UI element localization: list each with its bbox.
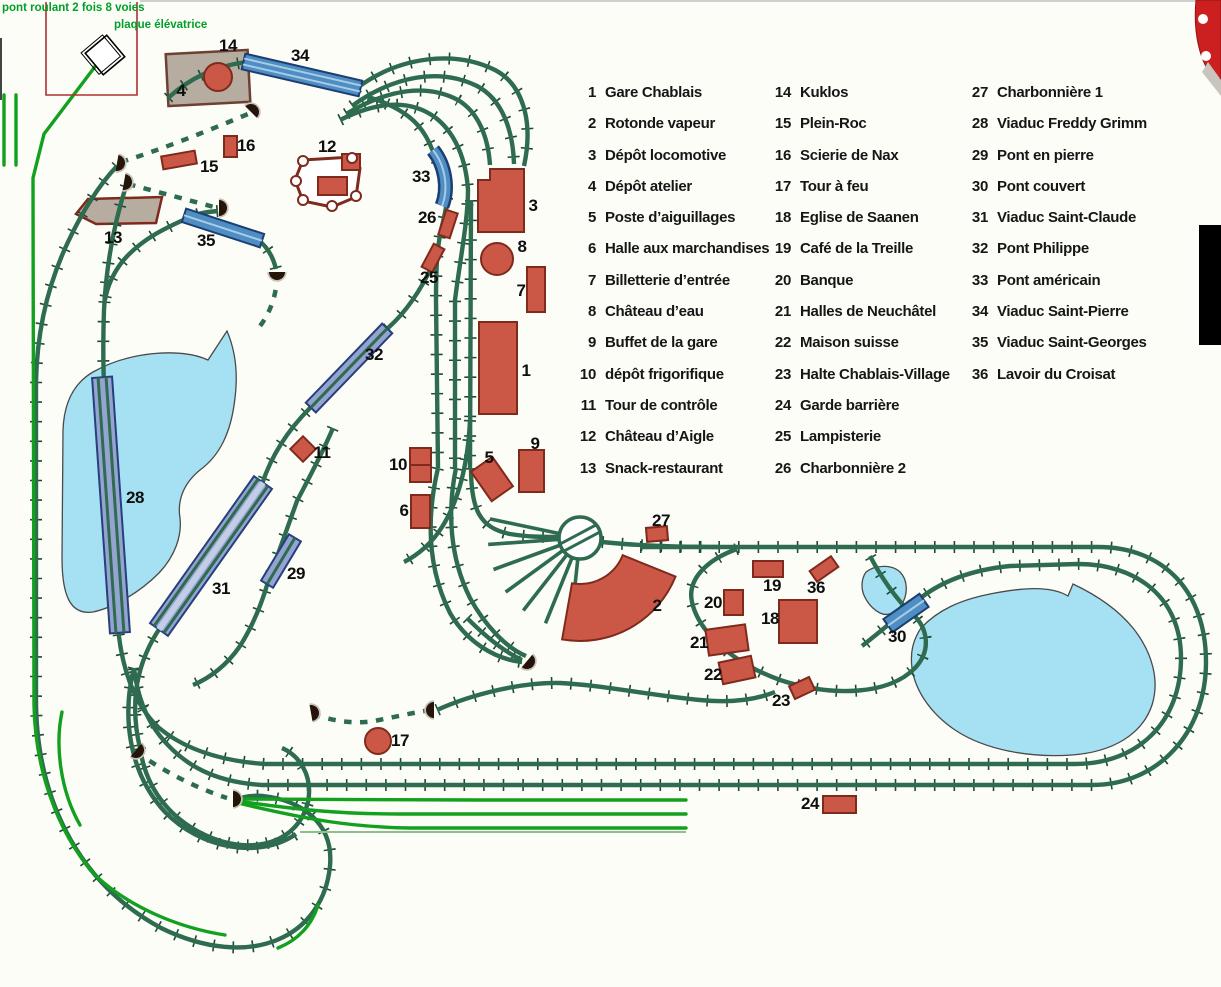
map-label-3: 3 [529, 196, 538, 216]
map-label-24: 24 [801, 794, 819, 814]
map-label-25: 25 [420, 268, 438, 288]
map-label-10: 10 [389, 455, 407, 475]
building-tour-controle-11 [290, 436, 315, 461]
scan-black-bar [1199, 225, 1221, 345]
map-label-2: 2 [653, 596, 662, 616]
map-label-11: 11 [314, 443, 331, 463]
map-label-16: 16 [237, 136, 255, 156]
building-halles-neuchatel-21 [705, 624, 748, 655]
map-label-14: 14 [219, 36, 237, 56]
building-halte-chablais-village-23 [789, 677, 815, 699]
map-label-32: 32 [365, 345, 383, 365]
building-maison-suisse-22 [719, 656, 756, 684]
track-plan-map [0, 0, 1221, 987]
building-plein-roc-15 [161, 151, 197, 170]
map-label-15: 15 [200, 157, 218, 177]
building-halle-marchandises-6 [411, 495, 430, 528]
map-label-26: 26 [418, 208, 436, 228]
building-banque-20 [724, 590, 743, 615]
building-billetterie-7 [527, 267, 545, 312]
turntable [559, 517, 601, 559]
building-garde-barriere-24 [823, 796, 856, 813]
pont-americain-33 [433, 150, 445, 206]
building-kuklos-14 [204, 63, 232, 91]
building-buffet-9 [519, 450, 544, 492]
map-label-12: 12 [318, 137, 336, 157]
map-label-4: 4 [177, 81, 186, 101]
building-cafe-treille-19 [753, 561, 783, 577]
elevator-plate [81, 33, 125, 77]
map-label-1: 1 [522, 361, 531, 381]
map-label-9: 9 [531, 434, 540, 454]
map-label-36: 36 [807, 578, 825, 598]
track-plan-page: pont roulant 2 fois 8 voies plaque éléva… [0, 0, 1221, 987]
annotation-plaque-elevatrice: plaque élévatrice [114, 19, 207, 31]
map-label-13: 13 [104, 228, 122, 248]
map-label-8: 8 [518, 237, 527, 257]
map-label-31: 31 [212, 579, 230, 599]
map-label-17: 17 [391, 731, 409, 751]
map-label-5: 5 [485, 448, 494, 468]
building-charbonniere2-26 [438, 210, 457, 238]
building-chateau-eau-8 [481, 243, 513, 275]
building-depot-locomotive-3 [478, 169, 524, 232]
corner-logo-fragment [1195, 0, 1221, 96]
map-label-7: 7 [517, 281, 526, 301]
building-gare-chablais-1 [479, 322, 517, 414]
lake-right [911, 584, 1155, 756]
map-label-22: 22 [704, 665, 722, 685]
map-label-21: 21 [690, 633, 708, 653]
pont-philippe-32 [306, 324, 392, 413]
map-label-29: 29 [287, 564, 305, 584]
map-label-6: 6 [400, 501, 409, 521]
annotation-pont-roulant: pont roulant 2 fois 8 voies [2, 2, 145, 14]
map-label-34: 34 [291, 46, 309, 66]
map-label-23: 23 [772, 691, 790, 711]
building-chateau-aigle-12 [291, 153, 361, 211]
map-label-19: 19 [763, 576, 781, 596]
building-eglise-saanen-18 [779, 600, 817, 643]
map-label-20: 20 [704, 593, 722, 613]
map-label-35: 35 [197, 231, 215, 251]
map-label-27: 27 [652, 511, 670, 531]
building-scierie-nax-16 [224, 136, 237, 157]
map-label-28: 28 [126, 488, 144, 508]
map-label-30: 30 [888, 627, 906, 647]
building-tour-a-feu-17 [365, 728, 391, 754]
map-label-33: 33 [412, 167, 430, 187]
map-label-18: 18 [761, 609, 779, 629]
